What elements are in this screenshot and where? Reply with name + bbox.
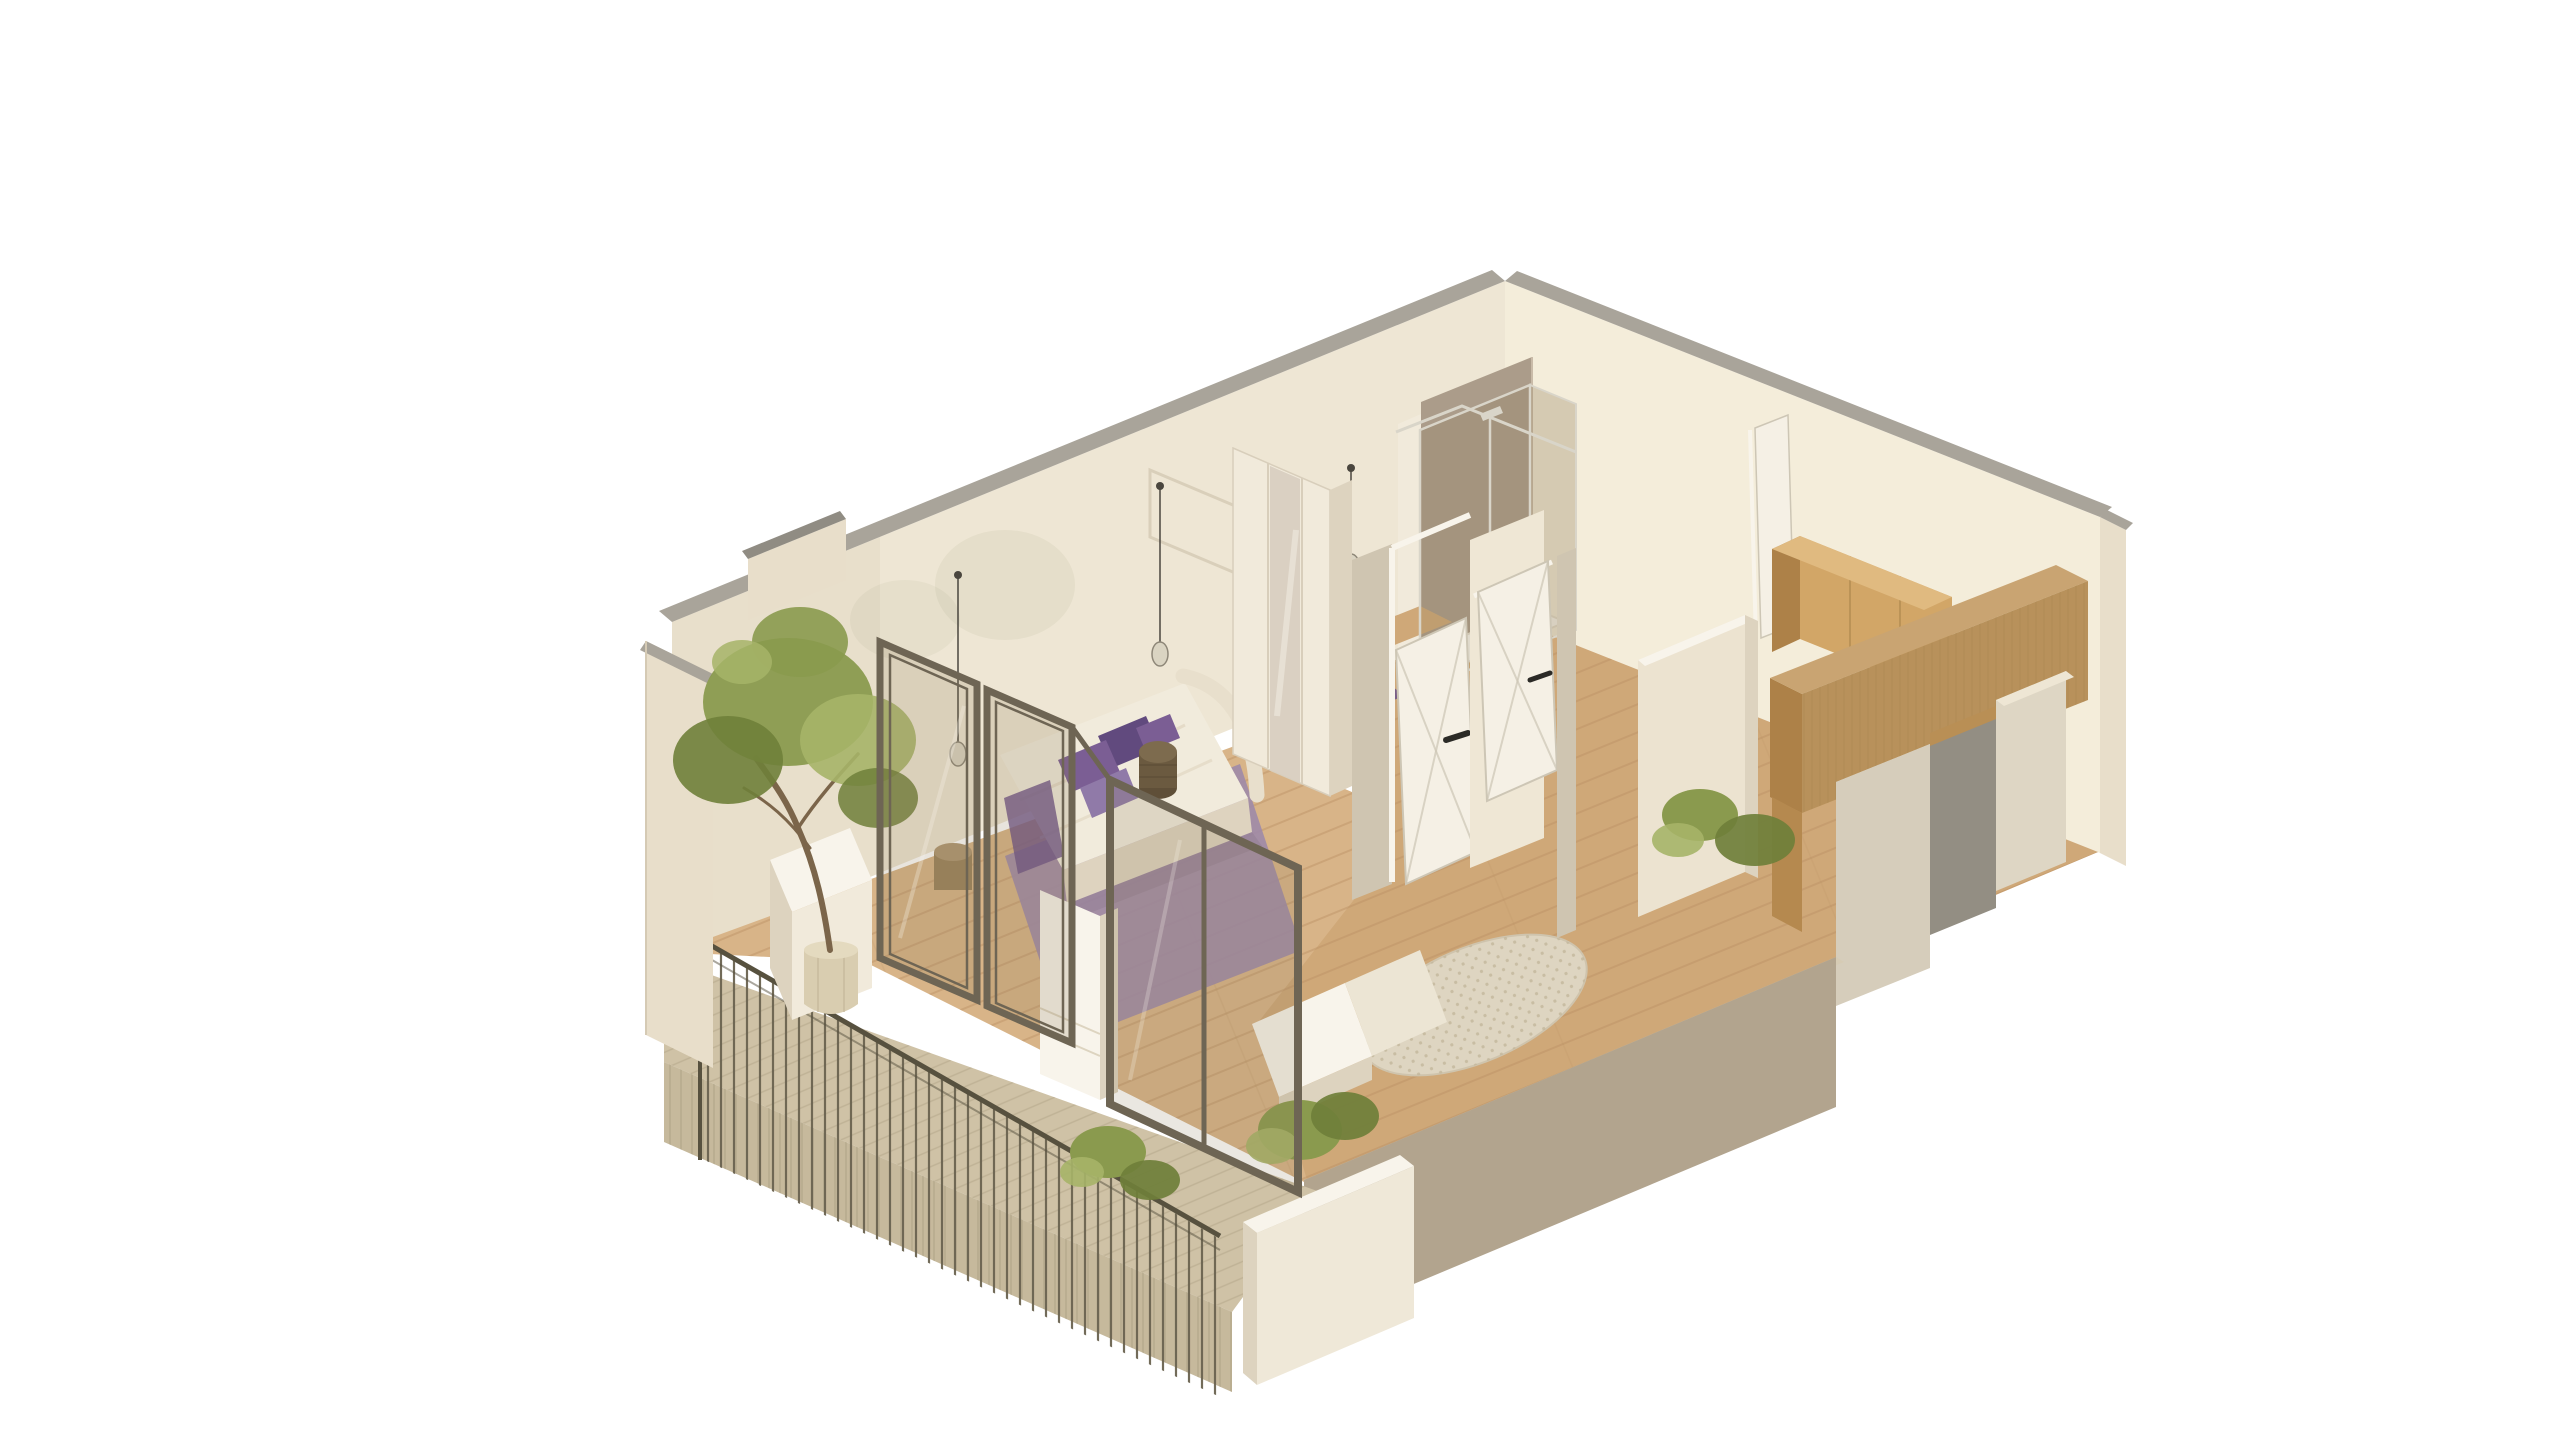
wardrobe (1233, 448, 1352, 796)
indoor-shrub-3 (1652, 823, 1704, 857)
gray-exterior-door (1930, 719, 1996, 935)
exterior-volume-left (1836, 744, 1930, 1006)
wardrobe-side-panel (1330, 480, 1352, 796)
glass-panel-2 (987, 690, 1072, 1043)
tree-foliage-6 (712, 640, 772, 684)
terrace-shrub-3 (1060, 1157, 1104, 1187)
side-table-top (1139, 741, 1177, 763)
apartment-3d-render (0, 0, 2560, 1440)
planter-shrub-2 (1311, 1092, 1379, 1140)
east-wall-sliver (2100, 517, 2126, 866)
planter-wall-side (1243, 1222, 1257, 1385)
indoor-shrub-2 (1715, 814, 1795, 866)
oak-floor-column (1772, 797, 1802, 932)
hall-wall-right-sliver (1557, 548, 1576, 938)
terrace-shrub-2 (1120, 1160, 1180, 1200)
glass-panel-1 (880, 642, 977, 1000)
tree-foliage-2 (673, 716, 783, 804)
west-end-wall (646, 641, 713, 1068)
hall-wall-left (1352, 544, 1392, 900)
render-canvas (0, 0, 2560, 1440)
counter-end-panel (1770, 678, 1802, 813)
plant-shadow-on-wall-2 (850, 580, 960, 660)
west-wall (640, 641, 713, 1068)
tree-pot (804, 950, 858, 1014)
glass-bulb (1152, 642, 1168, 666)
